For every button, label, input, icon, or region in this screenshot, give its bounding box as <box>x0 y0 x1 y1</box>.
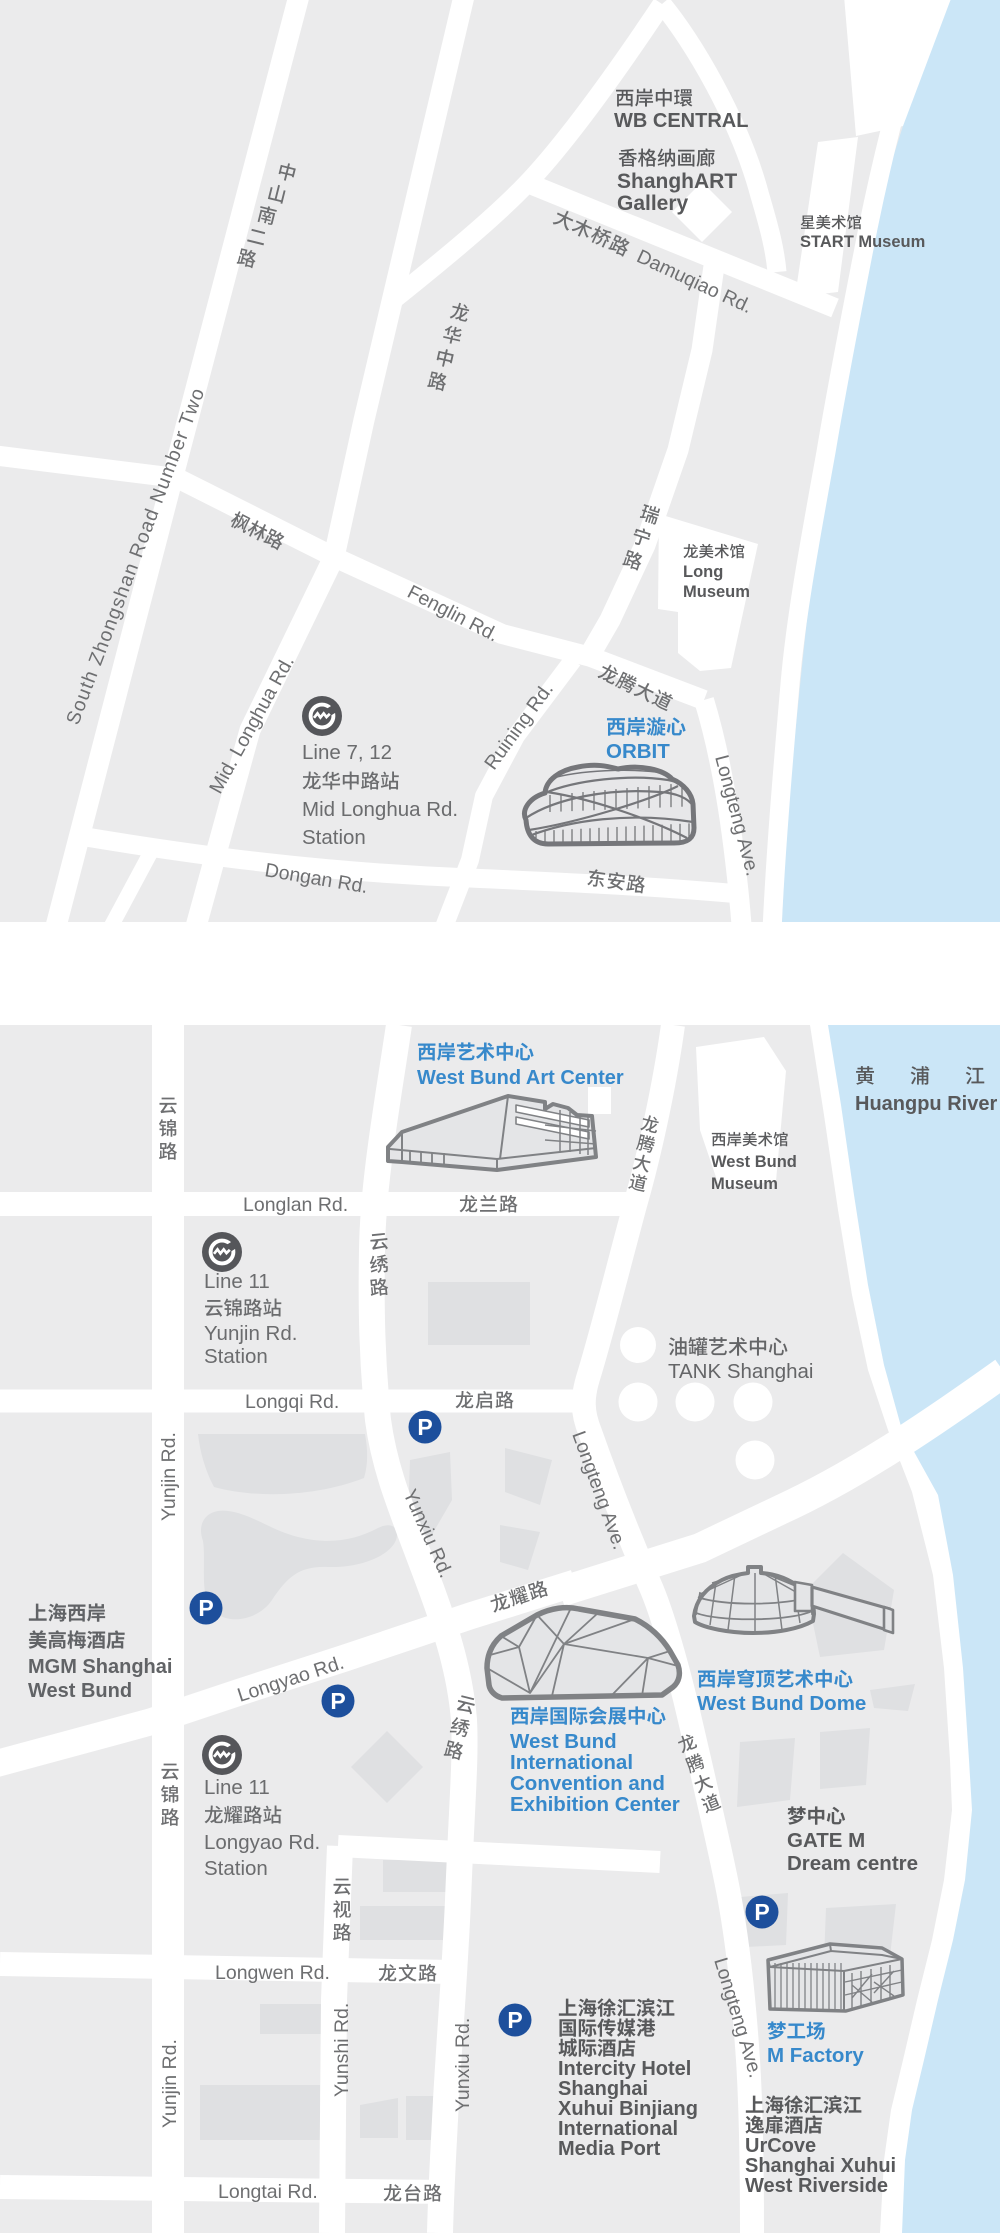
svg-text:Intercity Hotel: Intercity Hotel <box>558 2058 691 2080</box>
svg-text:Line 11: Line 11 <box>204 1776 270 1799</box>
svg-text:ShanghART: ShanghART <box>617 170 737 193</box>
svg-text:West Bund Dome: West Bund Dome <box>697 1692 866 1715</box>
svg-text:Exhibition Center: Exhibition Center <box>510 1793 680 1816</box>
svg-text:Museum: Museum <box>711 1175 778 1193</box>
svg-text:Longyao Rd.: Longyao Rd. <box>204 1831 320 1854</box>
svg-text:Gallery: Gallery <box>617 192 689 215</box>
svg-text:Station: Station <box>204 1345 268 1368</box>
svg-text:Longtai Rd.: Longtai Rd. <box>218 2181 318 2203</box>
svg-text:ORBIT: ORBIT <box>606 740 670 763</box>
svg-text:Yunjin Rd.: Yunjin Rd. <box>159 2039 181 2128</box>
svg-text:P: P <box>507 2007 522 2033</box>
svg-text:Shanghai: Shanghai <box>558 2078 648 2100</box>
svg-text:International: International <box>510 1751 633 1774</box>
svg-text:TANK Shanghai: TANK Shanghai <box>668 1360 813 1383</box>
svg-text:GATE M: GATE M <box>787 1829 865 1852</box>
svg-text:Convention and: Convention and <box>510 1772 665 1795</box>
svg-text:Station: Station <box>204 1857 268 1880</box>
svg-text:West Bund Art Center: West Bund Art Center <box>417 1067 624 1089</box>
svg-text:Huangpu River: Huangpu River <box>855 1093 997 1115</box>
svg-text:WB CENTRAL: WB CENTRAL <box>614 110 748 132</box>
svg-text:Station: Station <box>302 826 366 849</box>
svg-text:Yunshi Rd.: Yunshi Rd. <box>331 2003 353 2097</box>
svg-text:Longlan Rd.: Longlan Rd. <box>243 1194 348 1216</box>
svg-text:Yunjin Rd.: Yunjin Rd. <box>204 1322 297 1345</box>
svg-text:Long: Long <box>683 563 723 581</box>
svg-text:P: P <box>754 1899 769 1925</box>
svg-text:Mid Longhua Rd.: Mid Longhua Rd. <box>302 798 458 821</box>
svg-text:Dream centre: Dream centre <box>787 1852 918 1875</box>
svg-text:Longwen Rd.: Longwen Rd. <box>215 1962 330 1984</box>
svg-text:West Bund: West Bund <box>28 1680 132 1702</box>
svg-text:P: P <box>330 1688 345 1714</box>
svg-text:Xuhui Binjiang: Xuhui Binjiang <box>558 2098 698 2120</box>
svg-text:START Museum: START Museum <box>800 233 925 251</box>
svg-text:Shanghai Xuhui: Shanghai Xuhui <box>745 2155 896 2177</box>
svg-text:UrCove: UrCove <box>745 2135 816 2157</box>
svg-text:Museum: Museum <box>683 583 750 601</box>
svg-text:M Factory: M Factory <box>767 2044 864 2067</box>
svg-text:Yunxiu Rd.: Yunxiu Rd. <box>452 2018 474 2112</box>
svg-text:West Bund: West Bund <box>711 1153 797 1171</box>
svg-text:P: P <box>198 1595 213 1621</box>
svg-text:P: P <box>417 1414 432 1440</box>
svg-text:Line 11: Line 11 <box>204 1270 270 1293</box>
svg-text:International: International <box>558 2118 678 2140</box>
svg-text:Line 7, 12: Line 7, 12 <box>302 741 392 764</box>
svg-text:Yunjin Rd.: Yunjin Rd. <box>158 1432 180 1521</box>
svg-text:West Riverside: West Riverside <box>745 2175 888 2197</box>
svg-text:Media Port: Media Port <box>558 2138 661 2160</box>
svg-text:MGM Shanghai: MGM Shanghai <box>28 1656 172 1678</box>
svg-text:West Bund: West Bund <box>510 1730 617 1753</box>
svg-text:Longqi Rd.: Longqi Rd. <box>245 1391 339 1413</box>
